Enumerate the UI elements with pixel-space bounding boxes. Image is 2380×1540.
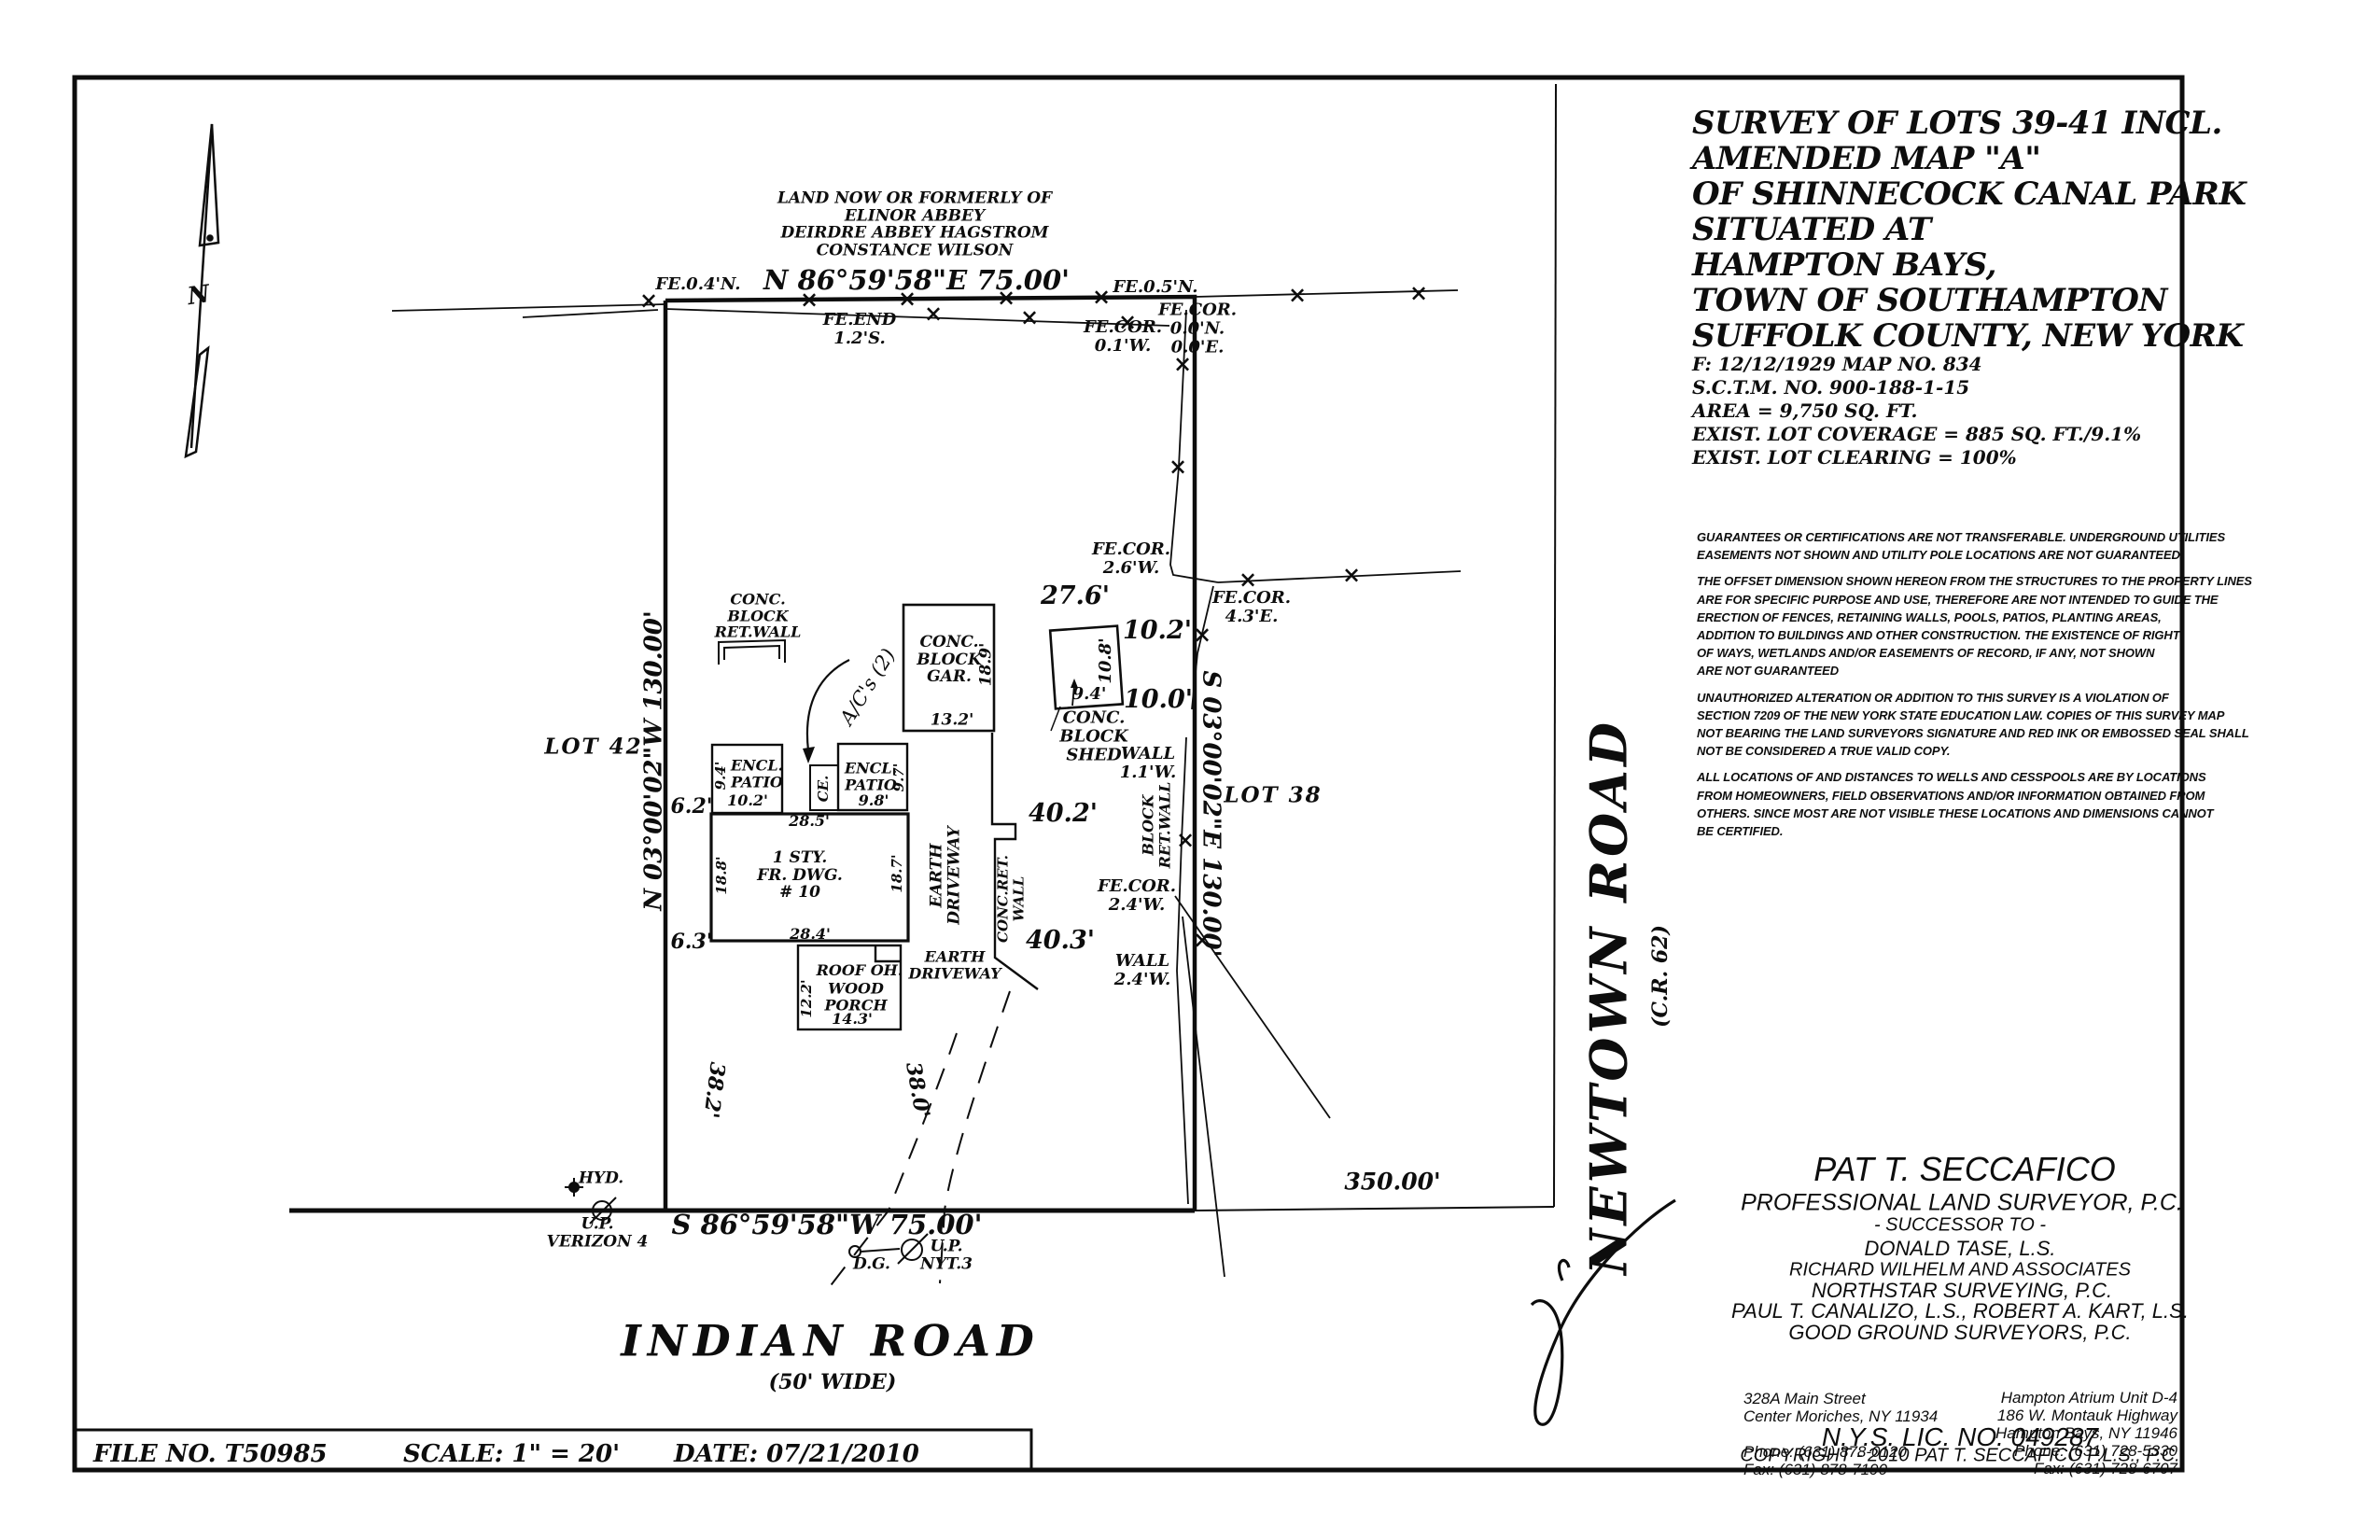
survey-sheet: LAND NOW OR FORMERLY OF ELINOR ABBEY DEI… (0, 0, 2380, 1540)
predecessor-5: GOOD GROUND SURVEYORS, P.C. (1788, 1321, 2131, 1345)
surveyor-title: PROFESSIONAL LAND SURVEYOR, P.C. (1741, 1190, 2183, 1217)
copyright-line: COPYRIGHT - 2010 PAT T. SECCAFICO P.L.S.… (1740, 1446, 2179, 1467)
predecessor-1: DONALD TASE, L.S. (1865, 1237, 2056, 1261)
surveyor-name: PAT T. SECCAFICO (1813, 1150, 2115, 1189)
successor-label: - SUCCESSOR TO - (1874, 1215, 2046, 1237)
surveyor-block: PAT T. SECCAFICOPROFESSIONAL LAND SURVEY… (0, 0, 2380, 1540)
